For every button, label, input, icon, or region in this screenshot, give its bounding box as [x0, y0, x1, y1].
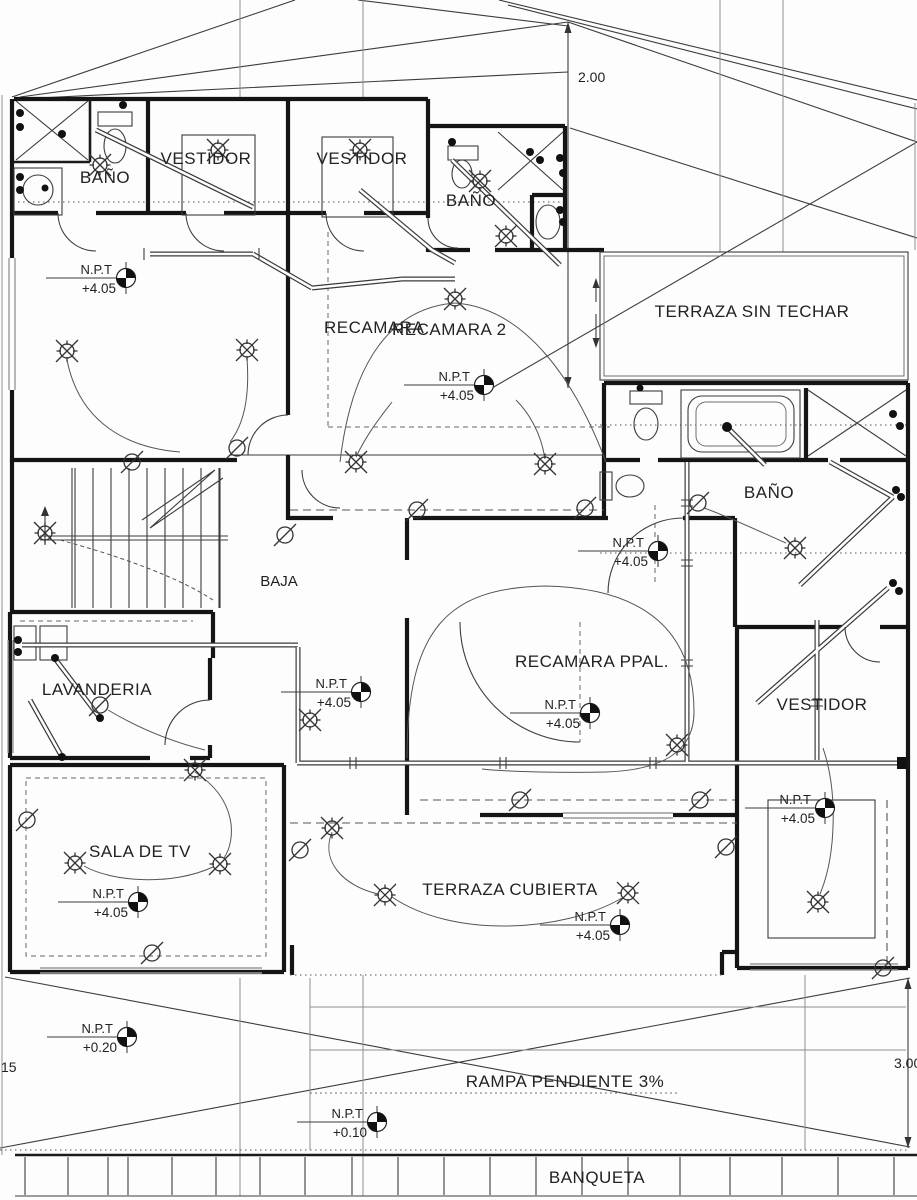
- junction-icon: [274, 524, 296, 546]
- ceiling-light-icon: [666, 734, 688, 756]
- room-label-vestidor-right: VESTIDOR: [777, 695, 868, 714]
- room-label-bano-right: BAÑO: [744, 483, 794, 502]
- npt-marker-sala-de-tv: N.P.T +4.05: [58, 886, 148, 920]
- room-label-terraza-sin-techar: TERRAZA SIN TECHAR: [655, 302, 850, 321]
- door-swings: [58, 213, 880, 745]
- room-label-rampa: RAMPA PENDIENTE 3%: [466, 1072, 665, 1091]
- walls-layer: [10, 99, 917, 1155]
- junction-icon: [574, 497, 596, 519]
- shower-icon: [498, 132, 563, 190]
- npt-marker-patio: N.P.T +0.20: [47, 1021, 137, 1055]
- toilet-icon: [630, 391, 662, 440]
- svg-text:N.P.T: N.P.T: [315, 676, 347, 691]
- dimension-right-value: 3.00: [894, 1055, 917, 1071]
- svg-text:N.P.T: N.P.T: [331, 1106, 363, 1121]
- junction-icon: [872, 957, 894, 979]
- npt-marker-terraza-cubierta: N.P.T +4.05: [540, 909, 630, 943]
- dimension-top-value: 2.00: [578, 69, 605, 85]
- svg-text:+4.05: +4.05: [82, 281, 116, 296]
- svg-text:+0.10: +0.10: [333, 1125, 367, 1140]
- svg-text:N.P.T: N.P.T: [438, 369, 470, 384]
- room-label-recamara-2: RECAMARA 2: [392, 320, 507, 339]
- svg-text:+4.05: +4.05: [440, 388, 474, 403]
- ceiling-light-icon: [299, 709, 321, 731]
- ceiling-light-icon: [64, 852, 86, 874]
- svg-text:+0.20: +0.20: [83, 1040, 117, 1055]
- dimension-left-partial: 15: [1, 1059, 17, 1075]
- site-lines: [0, 0, 917, 1196]
- npt-marker-recamara-ppal: N.P.T +4.05: [510, 697, 600, 731]
- svg-text:N.P.T: N.P.T: [92, 886, 124, 901]
- room-label-bano-top-mid: BAÑO: [446, 191, 496, 210]
- junction-icon: [509, 789, 531, 811]
- room-label-banqueta: BANQUETA: [549, 1168, 645, 1187]
- svg-text:N.P.T: N.P.T: [779, 792, 811, 807]
- npt-marker-recamara-2: N.P.T +4.05: [404, 369, 494, 403]
- junction-icon: [689, 789, 711, 811]
- stairs: [40, 468, 228, 608]
- windows: [8, 258, 898, 973]
- junction-icon: [226, 437, 248, 459]
- room-label-vestidor-1: VESTIDOR: [161, 149, 252, 168]
- ceiling-light-icon: [209, 853, 231, 875]
- junction-icon: [687, 492, 709, 514]
- ceiling-light-icon: [534, 453, 556, 475]
- room-label-vestidor-2: VESTIDOR: [317, 149, 408, 168]
- ceiling-light-icon: [444, 288, 466, 310]
- ceiling-light-icon: [184, 759, 206, 781]
- junction-icon: [715, 836, 737, 858]
- room-label-baja: BAJA: [260, 573, 298, 590]
- npt-marker-vestidor-right: N.P.T +4.05: [745, 792, 835, 826]
- sink-icon: [23, 175, 53, 205]
- ceiling-light-icon: [236, 339, 258, 361]
- floor-plan-drawing: 2.00 3.00 15: [0, 0, 917, 1200]
- bathtub-icon: [681, 390, 800, 458]
- ceiling-light-icon: [469, 170, 491, 192]
- npt-marker-bano-top-left: N.P.T +4.05: [46, 262, 136, 296]
- room-labels: BAÑO VESTIDOR VESTIDOR BAÑO TERRAZA SIN …: [42, 149, 868, 1187]
- ceiling-light-icon: [495, 225, 517, 247]
- svg-text:+4.05: +4.05: [576, 928, 610, 943]
- room-label-lavanderia: LAVANDERIA: [42, 680, 152, 699]
- dimension-right: 3.00: [894, 978, 917, 1148]
- ceiling-light-icon: [374, 884, 396, 906]
- ceiling-light-icon: [34, 522, 56, 544]
- junction-icon: [16, 809, 38, 831]
- svg-text:N.P.T: N.P.T: [544, 697, 576, 712]
- room-label-recamara-ppal: RECAMARA PPAL.: [515, 652, 669, 671]
- svg-text:+4.05: +4.05: [317, 695, 351, 710]
- svg-text:N.P.T: N.P.T: [81, 1021, 113, 1036]
- shower-icon: [16, 101, 88, 160]
- dashed-lines: [20, 232, 887, 975]
- room-label-bano-top-left: BAÑO: [80, 168, 130, 187]
- svg-text:+4.05: +4.05: [546, 716, 580, 731]
- svg-text:N.P.T: N.P.T: [574, 909, 606, 924]
- plumbing-pipes: [22, 130, 906, 769]
- dimension-top: 2.00: [565, 22, 606, 388]
- shower-icon: [808, 390, 906, 456]
- ceiling-light-icon: [784, 537, 806, 559]
- section-lines: [0, 202, 908, 1150]
- svg-text:+4.05: +4.05: [614, 554, 648, 569]
- room-label-terraza-cubierta: TERRAZA CUBIERTA: [422, 880, 598, 899]
- svg-text:N.P.T: N.P.T: [612, 535, 644, 550]
- room-label-sala-de-tv: SALA DE TV: [89, 842, 191, 861]
- npt-marker-hall-center: N.P.T +4.05: [281, 676, 371, 710]
- ceiling-light-icon: [56, 340, 78, 362]
- junction-icon: [121, 451, 143, 473]
- junction-icon: [289, 839, 311, 861]
- ceiling-light-icon: [807, 891, 829, 913]
- pipe-cap: [897, 757, 906, 769]
- npt-markers: N.P.T +4.05 N.P.T +4.05 N.P.T +4.05 N.P.…: [46, 262, 835, 1140]
- floor-plan-sheet: 2.00 3.00 15: [0, 0, 917, 1200]
- banqueta-paving: [15, 1157, 917, 1196]
- ceiling-light-icon: [617, 882, 639, 904]
- junction-icon: [141, 942, 163, 964]
- ceiling-light-icon: [345, 451, 367, 473]
- svg-text:+4.05: +4.05: [781, 811, 815, 826]
- svg-text:N.P.T: N.P.T: [80, 262, 112, 277]
- npt-marker-bano-right: N.P.T +4.05: [578, 535, 668, 569]
- svg-text:+4.05: +4.05: [94, 905, 128, 920]
- ceiling-light-icon: [321, 817, 343, 839]
- toilet-icon: [600, 472, 644, 500]
